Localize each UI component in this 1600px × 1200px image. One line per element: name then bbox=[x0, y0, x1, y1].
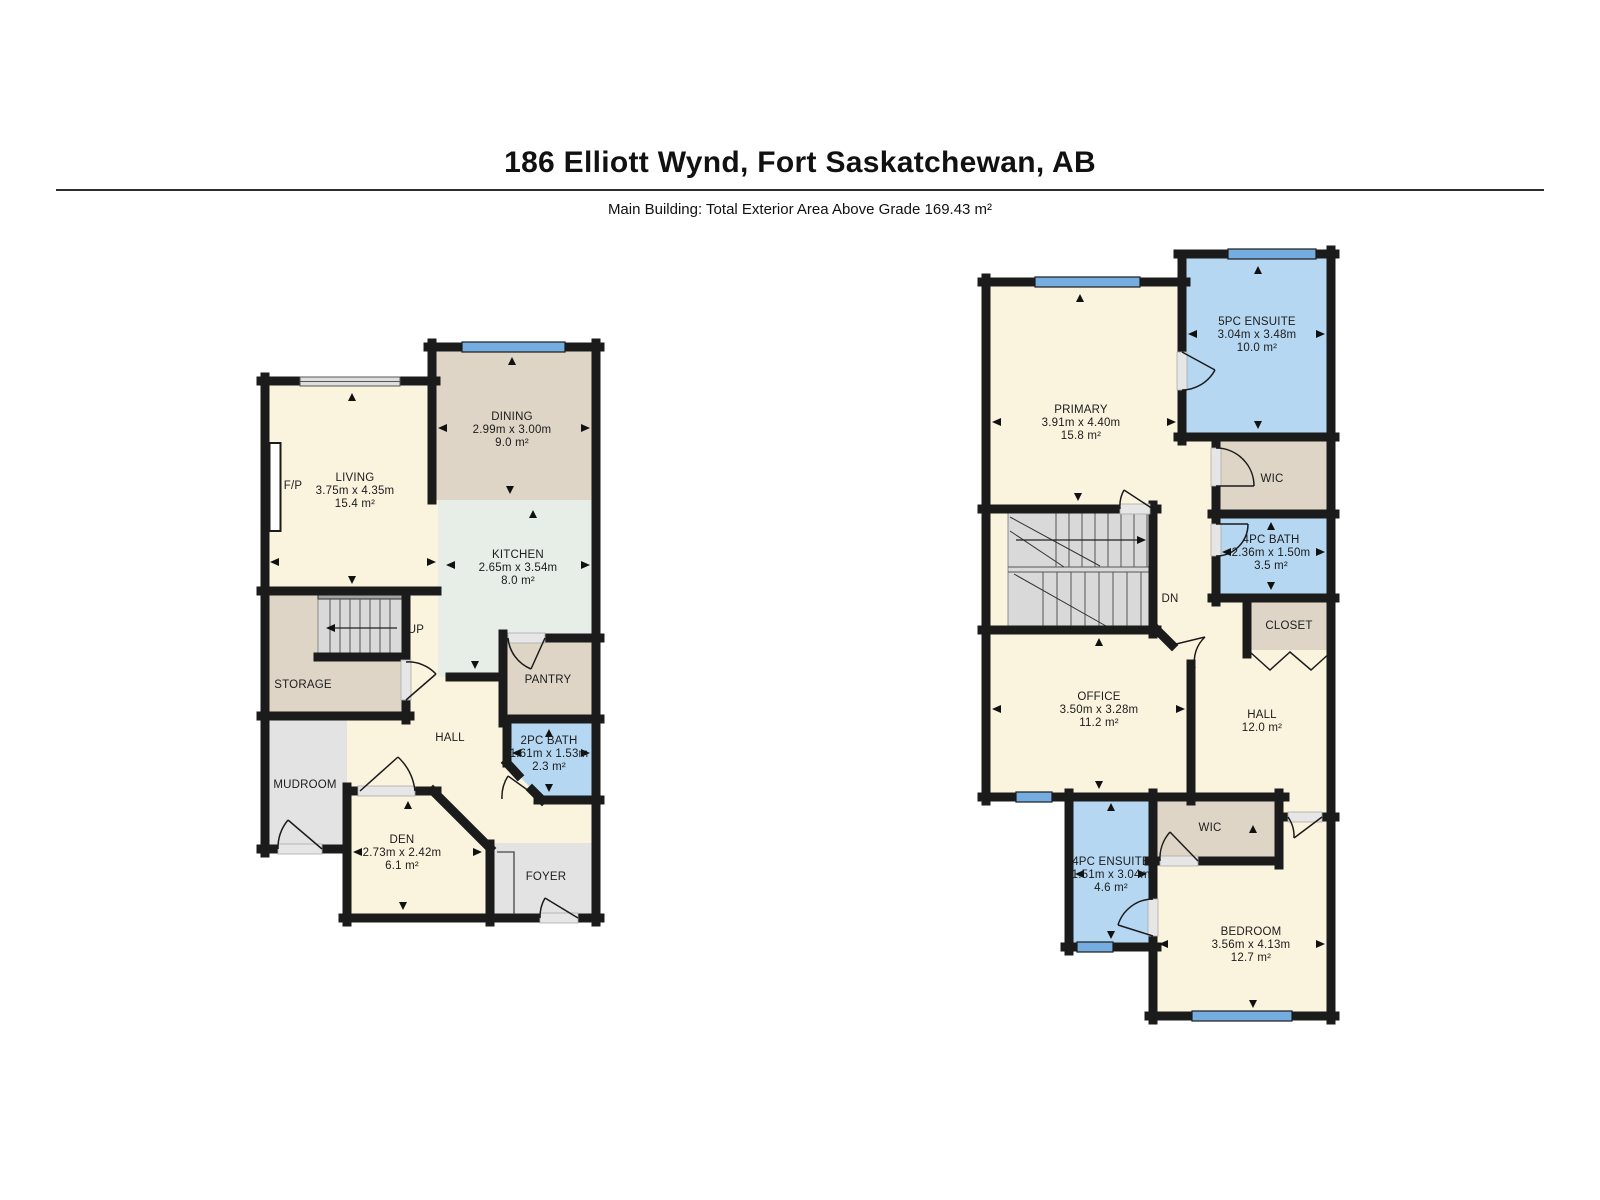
room-label-bedroom-area: 12.7 m² bbox=[1231, 952, 1271, 964]
room-label-bedroom-name: BEDROOM bbox=[1221, 926, 1282, 938]
room-label-4pc-ensuite-area: 4.6 m² bbox=[1094, 882, 1128, 894]
room-label-primary-name: PRIMARY bbox=[1054, 404, 1108, 416]
window-4pc-ensuite bbox=[1077, 942, 1113, 952]
room-label-4pc-bath-area: 3.5 m² bbox=[1254, 560, 1288, 572]
room-label-wic-upper: WIC bbox=[1261, 473, 1284, 485]
room-label-5pc-ensuite-area: 10.0 m² bbox=[1237, 342, 1277, 354]
room-label-den-area: 6.1 m² bbox=[385, 860, 419, 872]
room-label-living-area: 15.4 m² bbox=[335, 498, 375, 510]
room-label-pantry: PANTRY bbox=[525, 674, 572, 686]
staircase-up bbox=[318, 589, 402, 657]
room-label-kitchen-area: 8.0 m² bbox=[501, 575, 535, 587]
room-label-office-name: OFFICE bbox=[1077, 691, 1120, 703]
room-label-2pc-bath-dims: 1.61m x 1.53m bbox=[510, 748, 589, 760]
room-label-mudroom: MUDROOM bbox=[273, 779, 336, 791]
room-label-4pc-ensuite-dims: 1.51m x 3.04m bbox=[1072, 869, 1151, 881]
room-label-4pc-bath-name: 4PC BATH bbox=[1243, 534, 1300, 546]
room-label-hall-main: HALL bbox=[435, 732, 465, 744]
room-label-hall-upper-area: 12.0 m² bbox=[1242, 722, 1282, 734]
room-label-wic-lower: WIC bbox=[1199, 822, 1222, 834]
main-floor-plan: LIVING 3.75m x 4.35m 15.4 m² DINING 2.99… bbox=[261, 342, 600, 923]
window-office bbox=[1016, 792, 1052, 802]
room-label-5pc-ensuite-dims: 3.04m x 3.48m bbox=[1218, 329, 1297, 341]
window-primary bbox=[1035, 277, 1140, 287]
room-label-office-dims: 3.50m x 3.28m bbox=[1060, 704, 1139, 716]
stairs-up-label: UP bbox=[408, 624, 425, 636]
room-label-den-dims: 2.73m x 2.42m bbox=[363, 847, 442, 859]
room-label-living-name: LIVING bbox=[336, 472, 375, 484]
room-label-dining-name: DINING bbox=[491, 411, 532, 423]
stairs-down-label: DN bbox=[1161, 593, 1178, 605]
room-label-office-area: 11.2 m² bbox=[1079, 717, 1119, 729]
window-5pc-ensuite bbox=[1228, 249, 1316, 259]
window-bedroom bbox=[1192, 1011, 1292, 1021]
floor-plan-canvas: LIVING 3.75m x 4.35m 15.4 m² DINING 2.99… bbox=[0, 0, 1600, 1200]
room-label-kitchen-dims: 2.65m x 3.54m bbox=[479, 562, 558, 574]
room-label-den-name: DEN bbox=[390, 834, 415, 846]
fireplace bbox=[270, 443, 281, 531]
window-living bbox=[300, 377, 400, 386]
room-label-dining-dims: 2.99m x 3.00m bbox=[473, 424, 552, 436]
room-label-primary-area: 15.8 m² bbox=[1061, 430, 1101, 442]
room-label-4pc-bath-dims: 2.36m x 1.50m bbox=[1232, 547, 1311, 559]
room-label-kitchen-name: KITCHEN bbox=[492, 549, 544, 561]
room-label-primary-dims: 3.91m x 4.40m bbox=[1042, 417, 1121, 429]
upper-floor-plan: PRIMARY 3.91m x 4.40m 15.8 m² 5PC ENSUIT… bbox=[982, 249, 1335, 1021]
room-label-5pc-ensuite-name: 5PC ENSUITE bbox=[1218, 316, 1296, 328]
room-label-4pc-ensuite-name: 4PC ENSUITE bbox=[1072, 856, 1150, 868]
fireplace-label: F/P bbox=[284, 480, 303, 492]
room-label-bedroom-dims: 3.56m x 4.13m bbox=[1212, 939, 1291, 951]
window-dining bbox=[462, 342, 565, 352]
room-label-hall-upper-name: HALL bbox=[1247, 709, 1277, 721]
floor-plan-page: 186 Elliott Wynd, Fort Saskatchewan, AB … bbox=[0, 0, 1600, 1200]
room-label-dining-area: 9.0 m² bbox=[495, 437, 529, 449]
room-label-closet: CLOSET bbox=[1265, 620, 1312, 632]
room-label-2pc-bath-area: 2.3 m² bbox=[532, 761, 566, 773]
room-label-foyer: FOYER bbox=[526, 871, 567, 883]
room-label-2pc-bath-name: 2PC BATH bbox=[521, 735, 578, 747]
staircase-down bbox=[1008, 513, 1153, 630]
room-label-storage: STORAGE bbox=[274, 679, 332, 691]
room-label-living-dims: 3.75m x 4.35m bbox=[316, 485, 395, 497]
